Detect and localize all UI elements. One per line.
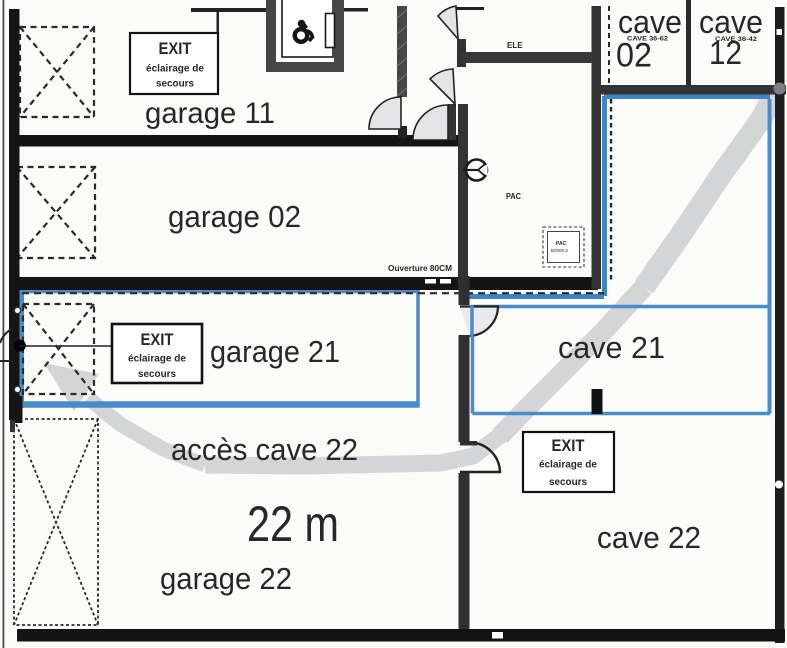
svg-text:garage 11: garage 11 [145,97,275,130]
svg-text:EXIT: EXIT [159,39,193,58]
svg-text:PAC: PAC [556,241,567,247]
svg-text:Ouverture 80CM: Ouverture 80CM [388,264,452,273]
svg-text:22 m: 22 m [247,496,339,552]
svg-text:ELE: ELE [507,41,523,50]
svg-text:EXIT: EXIT [552,436,586,455]
svg-text:secours: secours [549,476,587,488]
svg-text:cave 21: cave 21 [558,331,665,365]
svg-text:02: 02 [616,37,652,75]
svg-text:EXIT: EXIT [141,330,175,349]
svg-text:accès cave 22: accès cave 22 [171,432,358,467]
svg-text:éclairage de: éclairage de [146,63,204,75]
svg-text:cave 22: cave 22 [597,521,701,555]
svg-text:secours: secours [156,78,194,90]
svg-text:secours: secours [138,368,176,380]
svg-text:garage 21: garage 21 [210,334,340,369]
svg-text:12: 12 [709,34,742,71]
svg-text:éclairage de: éclairage de [128,353,186,365]
svg-text:B2000.3: B2000.3 [551,248,568,253]
svg-text:éclairage de: éclairage de [539,459,597,471]
svg-text:garage 02: garage 02 [168,199,301,234]
svg-text:garage 22: garage 22 [160,561,292,596]
svg-text:PAC: PAC [506,192,521,201]
